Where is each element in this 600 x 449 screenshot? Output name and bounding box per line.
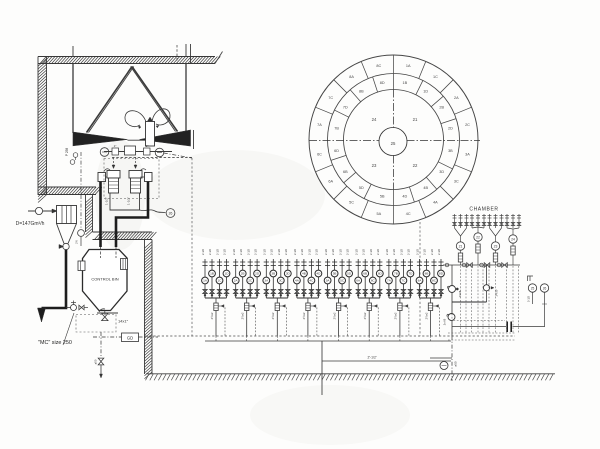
svg-text:4D: 4D [402,195,407,199]
svg-text:3B: 3B [448,149,453,153]
svg-text:7A: 7A [317,123,322,127]
svg-text:2-1/2: 2-1/2 [277,248,281,254]
svg-text:4B: 4B [302,272,306,276]
svg-text:2-1/2: 2-1/2 [345,248,349,254]
svg-text:2-1/2: 2-1/2 [423,248,427,254]
svg-text:2-1/2: 2-1/2 [376,248,380,254]
svg-text:5B: 5B [380,195,385,199]
svg-text:23: 23 [372,163,377,168]
svg-text:4C: 4C [406,212,411,216]
svg-text:1″: 1″ [146,144,149,148]
svg-text:2-1/2: 2-1/2 [315,248,319,254]
svg-text:P 258: P 258 [65,148,69,156]
svg-text:2-1/2: 2-1/2 [324,248,328,254]
svg-text:1D: 1D [423,90,428,94]
svg-text:2½x2: 2½x2 [363,312,367,319]
svg-text:1A: 1A [406,64,411,68]
svg-text:2½x2: 2½x2 [271,312,275,319]
svg-text:GD: GD [127,336,133,341]
svg-text:2-1/2: 2-1/2 [263,248,267,254]
svg-text:2-1/2: 2-1/2 [400,248,404,254]
svg-text:2A: 2A [454,96,459,100]
svg-text:5-1/2: 5-1/2 [527,295,531,301]
svg-text:2-1/2: 2-1/2 [239,248,243,254]
svg-text:2-1/2: 2-1/2 [223,248,227,254]
svg-text:4B: 4B [423,186,428,190]
svg-text:2D: 2D [448,127,453,131]
svg-text:22: 22 [413,163,418,168]
svg-text:2x-06: 2x-06 [443,318,447,325]
svg-text:3D: 3D [439,170,444,174]
svg-text:2-1/2: 2-1/2 [270,248,274,254]
svg-text:2-1/2: 2-1/2 [284,248,288,254]
svg-text:8D: 8D [380,81,385,85]
svg-text:2½x2: 2½x2 [302,312,306,319]
svg-text:2-1/2: 2-1/2 [407,248,411,254]
svg-text:2B: 2B [439,106,444,110]
svg-text:2-1/2: 2-1/2 [201,248,205,254]
svg-text:21: 21 [413,117,418,122]
svg-text:8C: 8C [376,64,381,68]
svg-text:2-1/2: 2-1/2 [369,248,373,254]
svg-text:6B: 6B [363,272,367,276]
svg-text:7C: 7C [328,96,333,100]
svg-text:2-1/2: 2-1/2 [437,248,441,254]
svg-text:8B: 8B [425,272,429,276]
svg-text:2-1/2: 2-1/2 [246,248,250,254]
svg-text:2-1/2: 2-1/2 [208,248,212,254]
svg-text:2′-1/2′: 2′-1/2′ [368,356,377,360]
svg-text:″MC″ size 250: ″MC″ size 250 [38,340,72,346]
svg-text:2-1/2: 2-1/2 [232,248,236,254]
svg-text:2-1/2: 2-1/2 [392,248,396,254]
svg-text:2-1/2: 2-1/2 [308,248,312,254]
svg-text:1B: 1B [210,272,214,276]
svg-text:21: 21 [459,244,463,248]
svg-text:24-06: 24-06 [458,290,462,297]
svg-text:1B: 1B [402,81,407,85]
svg-text:3C: 3C [454,180,459,184]
svg-text:ø50: ø50 [454,361,458,367]
svg-text:2-1/2: 2-1/2 [354,248,358,254]
svg-text:4A: 4A [433,201,438,205]
svg-text:8B: 8B [359,90,364,94]
svg-text:6A: 6A [328,180,333,184]
svg-text:2½x2: 2½x2 [241,312,245,319]
svg-text:24: 24 [511,237,515,241]
svg-text:24: 24 [372,117,377,122]
svg-text:6C: 6C [317,153,322,157]
svg-text:3B: 3B [271,272,275,276]
svg-text:7B: 7B [334,127,339,131]
svg-text:2-1/2: 2-1/2 [430,248,434,254]
svg-text:CONTROL BIN: CONTROL BIN [91,277,118,282]
svg-text:22: 22 [476,235,480,239]
svg-text:2-1/2: 2-1/2 [416,248,420,254]
svg-text:CHAMBER: CHAMBER [469,207,498,213]
svg-text:5B: 5B [333,272,337,276]
svg-text:D=147Gm³/h: D=147Gm³/h [16,221,45,227]
svg-text:3A: 3A [465,153,470,157]
svg-text:2-1/2: 2-1/2 [331,248,335,254]
svg-text:6D: 6D [334,149,339,153]
svg-text:2½x2: 2½x2 [332,312,336,319]
svg-text:26: 26 [169,212,173,216]
svg-text:2-1/2: 2-1/2 [385,248,389,254]
svg-text:2-1/2: 2-1/2 [293,248,297,254]
svg-text:25: 25 [531,286,535,290]
svg-text:5D: 5D [359,186,364,190]
svg-text:7D: 7D [343,106,348,110]
svg-text:2B: 2B [241,272,245,276]
svg-text:24-30: 24-30 [495,289,499,296]
svg-text:2-1/2: 2-1/2 [361,248,365,254]
svg-text:5A: 5A [376,212,381,216]
svg-text:2-1/2: 2-1/2 [338,248,342,254]
svg-text:6B: 6B [343,170,348,174]
svg-text:2-1/2: 2-1/2 [253,248,257,254]
svg-text:7B: 7B [394,272,398,276]
svg-text:2-1/2: 2-1/2 [216,248,220,254]
svg-text:5C: 5C [349,201,354,205]
svg-text:8A: 8A [349,75,354,79]
svg-text:2½x2: 2½x2 [424,312,428,319]
svg-text:2C: 2C [465,123,470,127]
svg-text:1″: 1″ [114,144,117,148]
svg-text:2½x2: 2½x2 [210,312,214,319]
svg-text:23: 23 [494,244,498,248]
svg-text:2½x2: 2½x2 [394,312,398,319]
svg-text:25: 25 [391,141,396,146]
svg-text:1C: 1C [433,75,438,79]
svg-text:2½: 2½ [75,239,79,243]
svg-text:ø50: ø50 [94,359,98,364]
svg-text:26: 26 [543,286,547,290]
svg-text:2-1/2: 2-1/2 [300,248,304,254]
svg-text:14x1″: 14x1″ [118,319,129,324]
